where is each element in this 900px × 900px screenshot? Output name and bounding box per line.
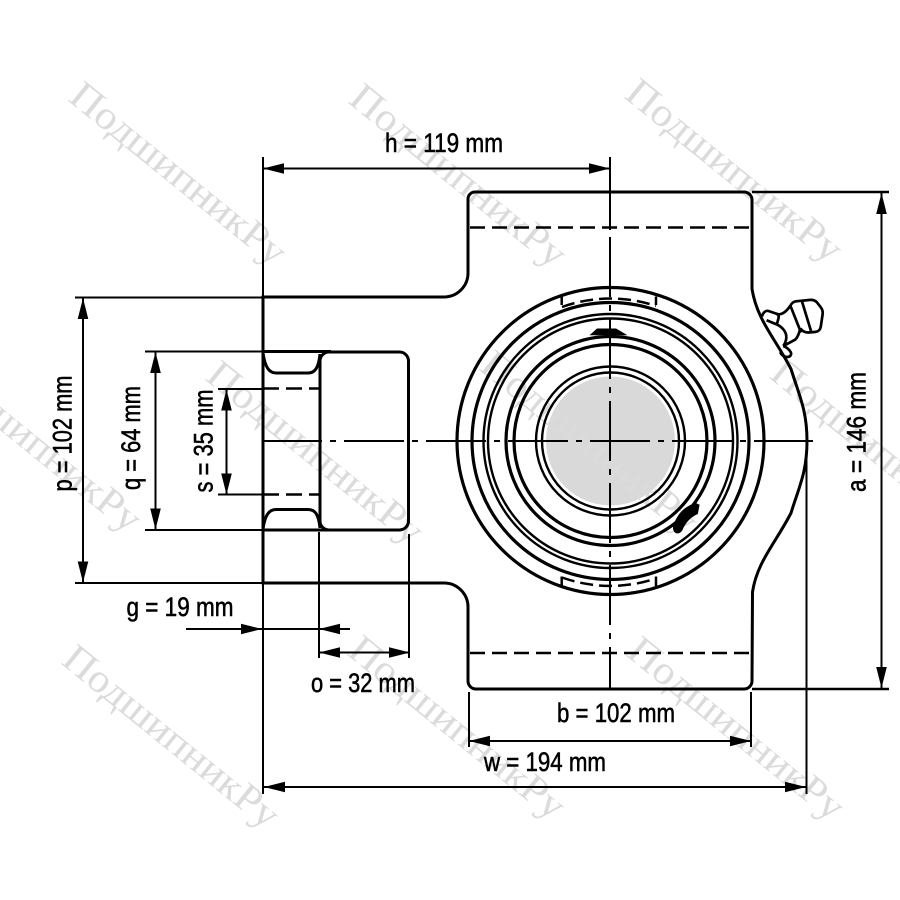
svg-text:w = 194 mm: w = 194 mm — [483, 747, 606, 777]
svg-text:g = 19 mm: g = 19 mm — [127, 592, 234, 622]
svg-text:h = 119 mm: h = 119 mm — [385, 128, 503, 158]
svg-text:s = 35 mm: s = 35 mm — [189, 390, 219, 493]
svg-text:b = 102 mm: b = 102 mm — [557, 698, 675, 728]
svg-text:q = 64 mm: q = 64 mm — [116, 386, 146, 490]
svg-text:a = 146 mm: a = 146 mm — [842, 372, 872, 492]
svg-text:p = 102 mm: p = 102 mm — [48, 376, 78, 492]
svg-text:o = 32 mm: o = 32 mm — [311, 668, 415, 698]
